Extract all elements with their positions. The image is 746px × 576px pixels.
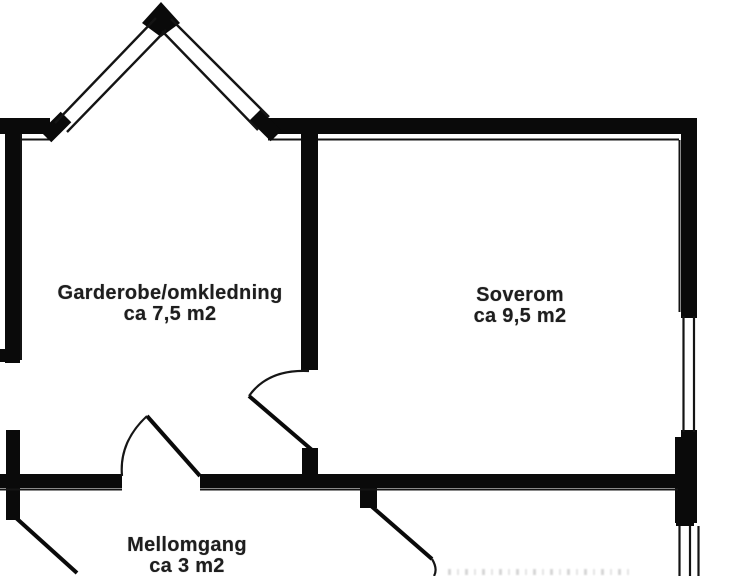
- wall-left: [5, 118, 20, 363]
- wall-interior-lower-stub: [302, 448, 318, 474]
- door-mellomgang-left-leaf: [15, 517, 77, 573]
- room-area-garderobe: ca 7,5 m2: [58, 304, 283, 325]
- bay-window-glazing: [55, 18, 269, 132]
- wall-bottom-right: [200, 474, 682, 488]
- window-cap-lower: [676, 517, 694, 526]
- room-label-garderobe: Garderobe/omkledning ca 7,5 m2: [58, 283, 283, 325]
- bay-glazing-right-inner: [162, 31, 258, 130]
- room-label-mellomgang: Mellomgang ca 3 m2: [127, 535, 247, 576]
- door-bottom-right-leaf: [370, 505, 432, 559]
- door-soverom-arc: [249, 371, 309, 396]
- floorplan-canvas: Garderobe/omkledning ca 7,5 m2 Soverom c…: [0, 0, 746, 576]
- door-mellomgang-left: [15, 517, 77, 573]
- bay-window-apex-post: [142, 2, 180, 37]
- bay-glazing-left-inner: [67, 30, 166, 132]
- door-garderobe: [122, 416, 200, 476]
- wall-door-stub-bottom: [360, 488, 377, 508]
- window-right-upper: [684, 316, 695, 432]
- window-right-lower: [680, 526, 699, 576]
- room-name-garderobe: Garderobe/omkledning: [58, 282, 283, 304]
- wall-right-upper: [681, 130, 697, 315]
- door-bottom-right-arc: [432, 559, 436, 576]
- door-bottom-right: [370, 505, 436, 576]
- room-area-soverom: ca 9,5 m2: [474, 306, 567, 327]
- wall-interior-upper: [301, 130, 318, 370]
- door-soverom-leaf: [249, 396, 312, 450]
- bay-glazing-left-outer: [55, 18, 156, 123]
- room-name-soverom: Soverom: [476, 284, 564, 306]
- wall-left-edge-stub: [0, 349, 6, 362]
- wall-bottom-left: [0, 474, 122, 488]
- room-name-mellomgang: Mellomgang: [127, 534, 247, 556]
- wall-top: [268, 118, 697, 134]
- door-garderobe-leaf: [147, 416, 200, 476]
- door-garderobe-arc: [122, 416, 147, 476]
- room-label-soverom: Soverom ca 9,5 m2: [474, 285, 567, 327]
- door-soverom: [249, 371, 312, 450]
- bay-glazing-right-outer: [171, 19, 269, 117]
- cutoff-text-artifact: [448, 569, 633, 575]
- room-area-mellomgang: ca 3 m2: [127, 556, 247, 576]
- bay-window: [46, 2, 276, 137]
